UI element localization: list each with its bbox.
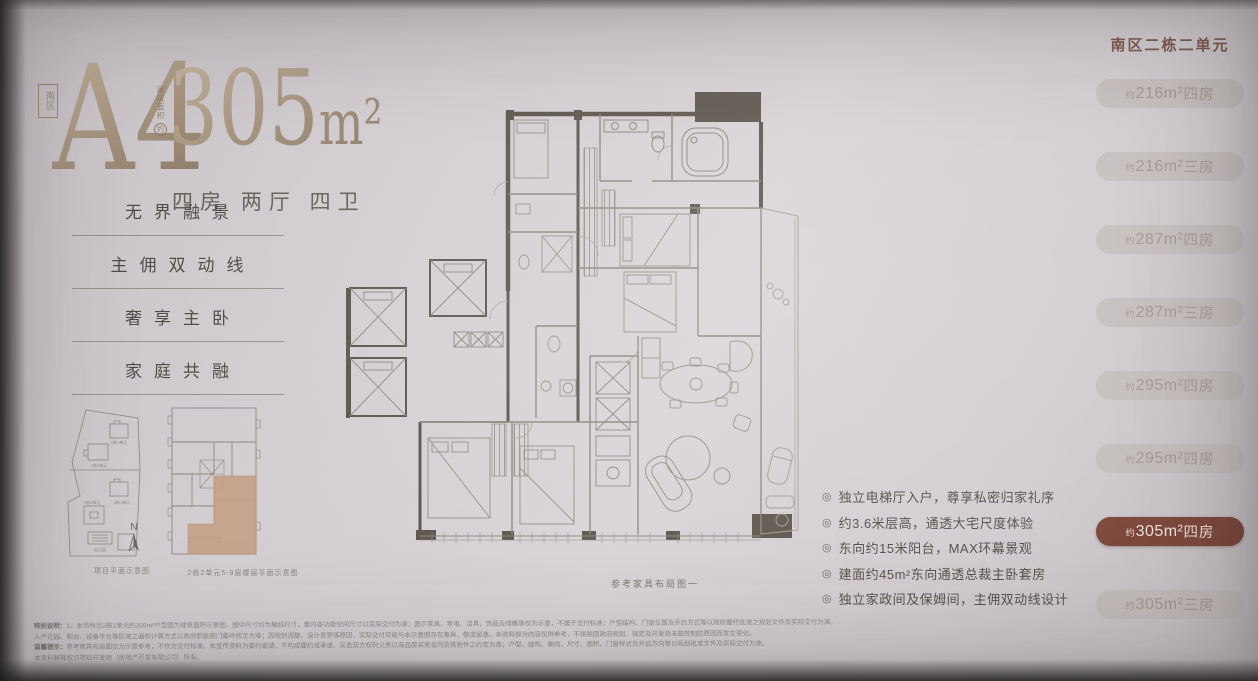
unit-pill-216-3[interactable]: 约216m²三房	[1096, 152, 1244, 181]
site-label: 1栋2单元	[91, 462, 107, 468]
balcony	[761, 208, 798, 534]
sofa-icon	[641, 341, 753, 516]
bullet-icon: ◎	[822, 567, 832, 582]
site-label: 2栋2单元	[84, 499, 100, 505]
bullet-icon: ◎	[822, 541, 832, 556]
area-label-vertical: 建筑面积 约	[154, 86, 167, 136]
site-label: 1栋1单元	[111, 439, 127, 445]
board-edge-top	[0, 0, 1258, 10]
floorplan-board: 南区 A4 建筑面积 约 305m² 四房 两厅 四卫 无界融景 主佣双动线 奢…	[0, 0, 1258, 681]
site-label: 幼儿园	[94, 546, 106, 552]
selling-point: 家庭共融	[72, 355, 284, 395]
compass-icon: N	[124, 520, 144, 556]
wardrobe	[492, 148, 615, 476]
unit-pill-305-4-active[interactable]: 约305m²四房	[1096, 517, 1244, 546]
unit-pill-305-3[interactable]: 约305m²三房	[1096, 590, 1244, 619]
site-label: 2栋1单元	[114, 499, 130, 505]
board-edge-left	[0, 0, 26, 681]
floorplan-caption: 参考家具布局图一	[560, 577, 750, 590]
unit-pill-295-4b[interactable]: 约295m²四房	[1096, 444, 1244, 473]
selling-point: 奢享主卧	[72, 302, 284, 342]
feature-item: ◎独立家政间及保姆间，主佣双动线设计	[822, 592, 1082, 607]
bathtub-icon	[604, 120, 728, 176]
feature-item: ◎独立电梯厅入户，尊享私密归家礼序	[822, 490, 1082, 505]
unit-pill-287-4[interactable]: 约287m²四房	[1096, 225, 1244, 254]
walls	[348, 92, 792, 540]
feature-list: ◎独立电梯厅入户，尊享私密归家礼序 ◎约3.6米层高，通透大宅尺度体验 ◎东向约…	[822, 490, 1082, 618]
elevator-shaft-icon	[350, 260, 486, 416]
feature-item: ◎东向约15米阳台，MAX环幕景观	[822, 541, 1082, 556]
unit-pill-287-3[interactable]: 约287m²三房	[1096, 298, 1244, 327]
dining-set-icon	[642, 338, 738, 408]
selling-points: 无界融景 主佣双动线 奢享主卧 家庭共融	[72, 196, 284, 408]
disclaimer: 特别说明：1、本页所示2栋2单元约305m²户型图为建筑面积示意图，图中尺寸均为…	[34, 616, 1242, 664]
highlighted-unit	[188, 476, 256, 554]
floorplan-drawing	[332, 86, 814, 574]
unit-list: 约216m²四房 约216m²三房 约287m²四房 约287m²三房 约295…	[1088, 79, 1252, 663]
bullet-icon: ◎	[822, 490, 832, 505]
sidebar-title: 南区二栋二单元	[1086, 34, 1254, 55]
feature-item: ◎约3.6米层高，通透大宅尺度体验	[822, 516, 1082, 531]
svg-text:N: N	[130, 522, 137, 533]
floorplate-caption: 2栋2单元5-9层楼层平面示意图	[148, 568, 338, 578]
bed-icon	[428, 120, 690, 524]
unit-pill-295-4a[interactable]: 约295m²四房	[1096, 371, 1244, 400]
area-label-text: 建筑面积	[155, 86, 166, 120]
bullet-icon: ◎	[822, 592, 832, 607]
approx-circle-icon: 约	[154, 123, 167, 136]
selling-point: 主佣双动线	[72, 249, 284, 289]
selling-point: 无界融景	[72, 196, 284, 236]
feature-item: ◎建面约45m²东向通透总裁主卧套房	[822, 567, 1082, 582]
floorplate-thumbnail	[162, 402, 266, 562]
unit-pill-216-4[interactable]: 约216m²四房	[1096, 79, 1244, 108]
bullet-icon: ◎	[822, 516, 832, 531]
